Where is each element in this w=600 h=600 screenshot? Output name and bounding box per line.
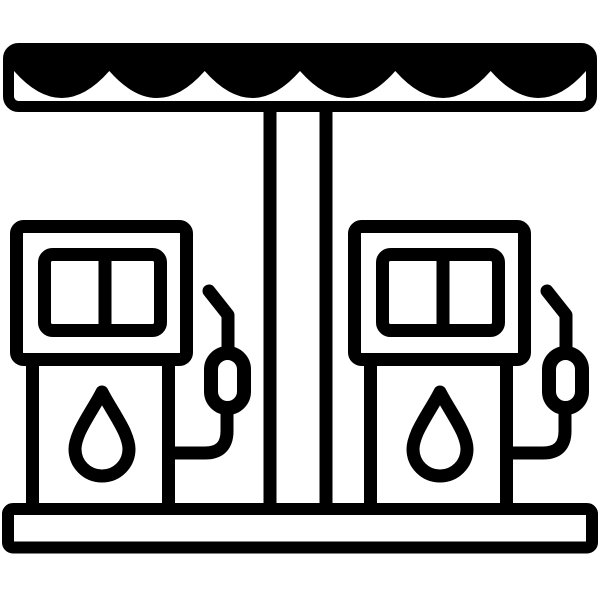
canopy	[9, 49, 592, 107]
base-platform	[8, 509, 592, 548]
support-pillar	[270, 105, 326, 508]
right-pump-hose	[509, 410, 565, 453]
left-pump	[17, 227, 245, 508]
right-pump	[355, 227, 583, 508]
right-pump-nozzle-handle	[549, 353, 582, 408]
left-pump-nozzle-spout	[209, 291, 228, 350]
canopy-awning-scallops	[14, 54, 586, 98]
icon-canvas: Gas station	[0, 0, 600, 600]
left-pump-hose	[171, 410, 227, 453]
icon-root	[8, 49, 592, 548]
gas-station-icon: Gas station	[0, 0, 600, 600]
left-pump-fuel-drop-icon	[75, 392, 129, 476]
right-pump-nozzle-spout	[547, 291, 566, 350]
left-pump-nozzle-handle	[211, 353, 244, 408]
right-pump-fuel-drop-icon	[413, 392, 467, 476]
